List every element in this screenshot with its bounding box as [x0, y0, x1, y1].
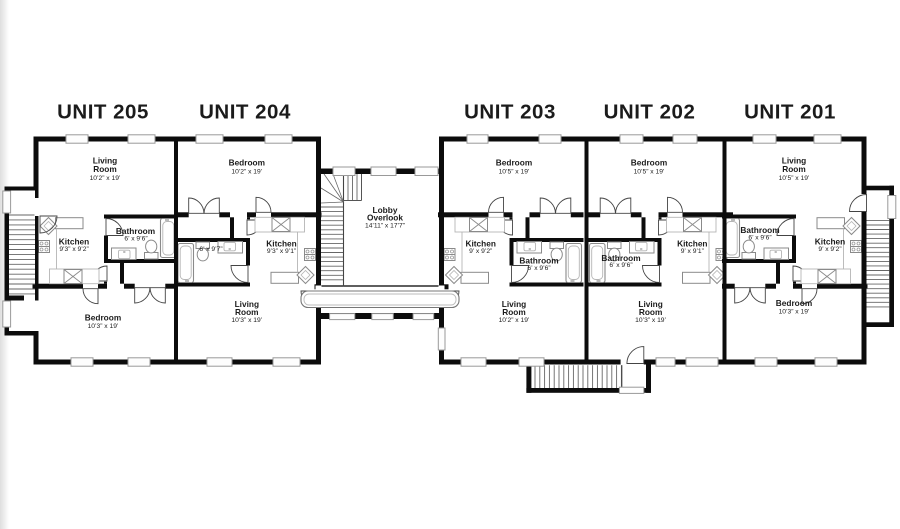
svg-text:Kitchen: Kitchen — [465, 239, 495, 249]
svg-text:6’ x 9’7”: 6’ x 9’7” — [199, 246, 222, 253]
svg-text:10’3” x 19’: 10’3” x 19’ — [779, 309, 810, 316]
svg-text:Kitchen: Kitchen — [59, 237, 89, 247]
svg-text:9’3” x 9’2”: 9’3” x 9’2” — [59, 246, 88, 253]
svg-text:9’ x 9’2”: 9’ x 9’2” — [818, 246, 841, 253]
svg-text:Bathroom: Bathroom — [740, 225, 779, 235]
svg-text:6’ x 9’6”: 6’ x 9’6” — [124, 236, 147, 243]
svg-text:Bathroom: Bathroom — [519, 256, 558, 266]
svg-text:10’3” x 19’: 10’3” x 19’ — [88, 323, 119, 330]
svg-text:UNIT 202: UNIT 202 — [604, 101, 696, 124]
svg-text:9’ x 9’1”: 9’ x 9’1” — [681, 248, 704, 255]
svg-text:Bedroom: Bedroom — [229, 158, 265, 168]
svg-text:Overlook: Overlook — [367, 213, 403, 223]
svg-text:Room: Room — [235, 307, 259, 317]
svg-text:UNIT 203: UNIT 203 — [464, 101, 556, 124]
svg-text:9’3” x 9’1”: 9’3” x 9’1” — [267, 248, 296, 255]
svg-text:6’ x 9’6”: 6’ x 9’6” — [609, 262, 632, 269]
svg-text:9’ x 9’2”: 9’ x 9’2” — [469, 248, 492, 255]
svg-text:Room: Room — [93, 164, 117, 174]
svg-text:14’11” x 17’7”: 14’11” x 17’7” — [365, 223, 405, 230]
svg-text:10’2” x 19’: 10’2” x 19’ — [231, 169, 262, 176]
svg-text:UNIT 201: UNIT 201 — [744, 101, 836, 124]
svg-text:Room: Room — [639, 307, 663, 317]
svg-text:Bedroom: Bedroom — [85, 313, 121, 323]
svg-text:6’ x 9’6”: 6’ x 9’6” — [748, 235, 771, 242]
svg-text:10’2” x 19’: 10’2” x 19’ — [90, 175, 121, 182]
svg-text:Room: Room — [782, 164, 806, 174]
svg-text:10’5” x 19’: 10’5” x 19’ — [499, 169, 530, 176]
svg-text:Bedroom: Bedroom — [631, 158, 667, 168]
svg-text:10’5” x 19’: 10’5” x 19’ — [634, 169, 665, 176]
svg-text:UNIT 205: UNIT 205 — [57, 101, 149, 124]
svg-text:10’3” x 19’: 10’3” x 19’ — [635, 317, 666, 324]
svg-text:Bedroom: Bedroom — [496, 158, 532, 168]
svg-text:10’2” x 19’: 10’2” x 19’ — [499, 317, 530, 324]
svg-text:Bathroom: Bathroom — [116, 226, 155, 236]
svg-text:Kitchen: Kitchen — [815, 237, 845, 247]
svg-text:Bedroom: Bedroom — [776, 298, 812, 308]
svg-text:Kitchen: Kitchen — [677, 239, 707, 249]
svg-text:Room: Room — [502, 307, 526, 317]
svg-text:Kitchen: Kitchen — [266, 239, 296, 249]
svg-text:10’5” x 19’: 10’5” x 19’ — [779, 175, 810, 182]
svg-text:10’3” x 19’: 10’3” x 19’ — [231, 317, 262, 324]
svg-text:6’ x 9’6”: 6’ x 9’6” — [527, 265, 550, 272]
svg-text:UNIT 204: UNIT 204 — [199, 101, 291, 124]
